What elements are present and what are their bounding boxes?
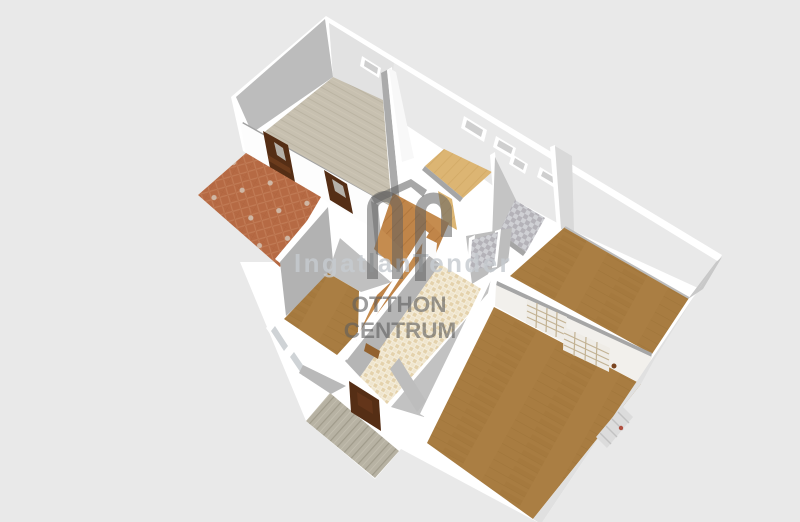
svg-text:OTTHON: OTTHON	[352, 292, 447, 317]
svg-text:IngatlanTender: IngatlanTender	[294, 248, 512, 278]
svg-text:CENTRUM: CENTRUM	[344, 318, 457, 343]
